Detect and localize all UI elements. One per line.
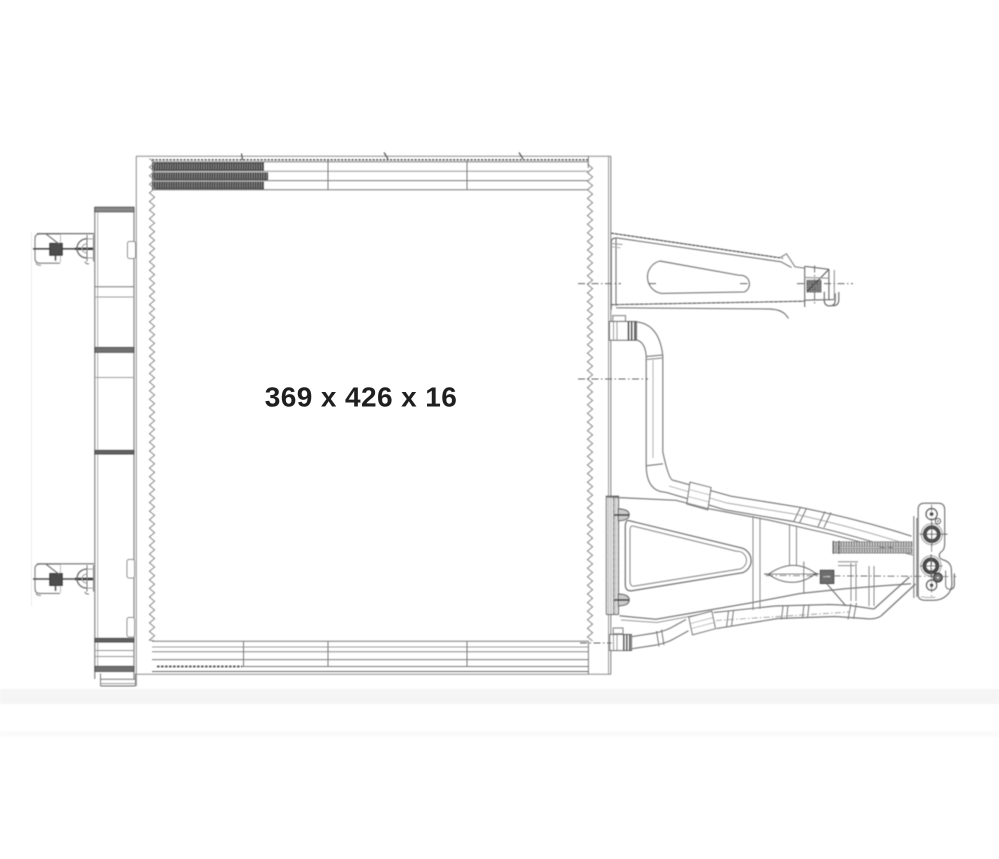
svg-text:369 x 426 x 16: 369 x 426 x 16 <box>265 382 457 413</box>
